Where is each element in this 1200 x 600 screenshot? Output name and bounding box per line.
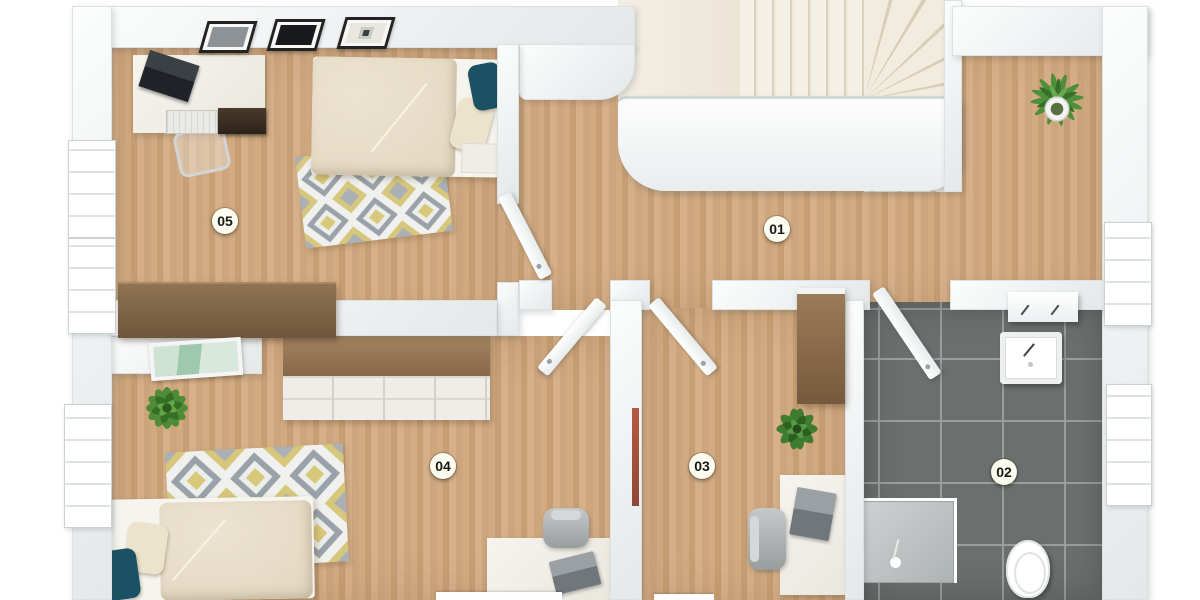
dresser-room-05 (118, 282, 336, 338)
plant-hall-alcove (1002, 46, 1112, 150)
floorplan-render: 01 02 03 04 05 (0, 0, 1200, 600)
stair-straight-flight (740, 0, 868, 100)
hall-corner-wall (519, 44, 635, 100)
picture-art-black (275, 25, 317, 45)
bathroom-washbasin (1000, 332, 1062, 384)
toilet (1006, 540, 1050, 598)
wardrobe-top (283, 336, 490, 376)
faucet-icon (1051, 305, 1060, 316)
wall-hall-room05-lower (497, 282, 519, 336)
bed-foot-bench (461, 143, 500, 174)
bed-room-04 (101, 496, 315, 600)
window-left-3 (64, 404, 112, 528)
laptop-room-03 (789, 487, 837, 541)
faucet-icon (1023, 343, 1035, 357)
window-left-1 (68, 140, 116, 238)
basin-drain (1028, 362, 1033, 367)
room-label-01: 01 (764, 216, 790, 242)
wall-room03-bathroom (845, 300, 864, 600)
stair-landing (618, 0, 744, 100)
chair-room-03 (748, 508, 786, 570)
wardrobe-drawers (283, 376, 490, 420)
room-label-04: 04 (430, 453, 456, 479)
picture-art-gray (207, 27, 249, 47)
faucet-icon (1021, 305, 1030, 316)
stair-guard-wall (618, 96, 962, 191)
chair-room-04 (543, 508, 589, 548)
window-right-1 (1104, 222, 1152, 326)
hall-south-wall-a (519, 280, 552, 310)
wall-hall-room05-upper (497, 44, 519, 204)
wardrobe-room-03 (797, 288, 845, 404)
window-right-2 (1106, 384, 1152, 506)
window-sill-bottom-1 (436, 592, 562, 600)
chair-headrest (551, 510, 581, 520)
shelf-tray-room-05 (218, 108, 266, 134)
window-sill-bottom-2 (654, 594, 714, 600)
room-label-02: 02 (991, 459, 1017, 485)
staircase-zone (618, 0, 962, 192)
picture-frame-1 (198, 21, 257, 53)
picture-frame-2 (266, 19, 325, 51)
shower-tray (862, 498, 957, 583)
bed-room-05 (311, 56, 501, 177)
wardrobe-room-04 (283, 336, 490, 420)
bed-duvet (159, 500, 313, 600)
room-label-05: 05 (212, 208, 238, 234)
wall-poster-strip (632, 408, 639, 506)
shower-head-icon (890, 557, 901, 568)
toilet-lid-line (1014, 552, 1046, 594)
bathroom-vanity-shelf (1008, 292, 1078, 322)
bed-duvet (311, 56, 457, 176)
picture-frame-3 (336, 17, 395, 49)
window-left-2 (68, 238, 116, 334)
roof-window-glass (149, 337, 243, 381)
room-label-03: 03 (689, 453, 715, 479)
keyboard-room-05 (166, 110, 218, 134)
shower-hose (893, 539, 900, 559)
chair-headrest (750, 516, 759, 562)
